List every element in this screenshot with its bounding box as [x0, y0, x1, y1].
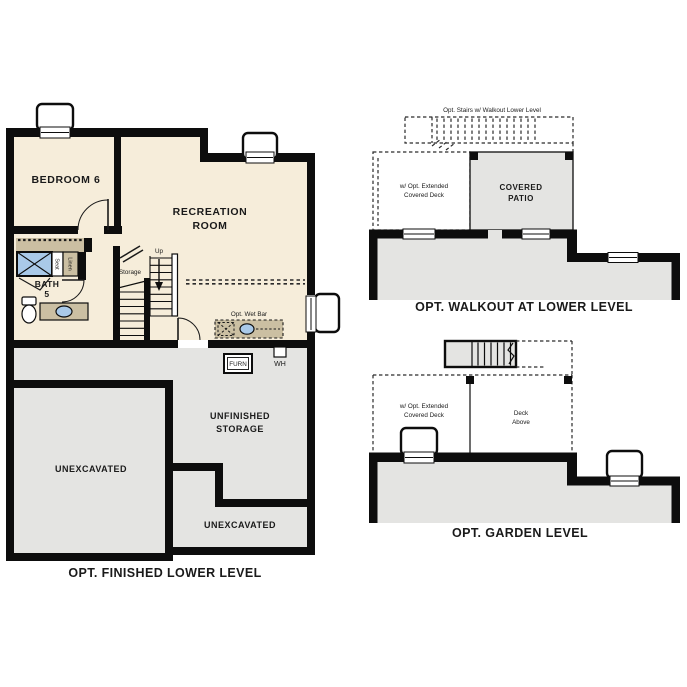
- patio-door-opening: [488, 230, 502, 239]
- unexcavated-left-label: UNEXCAVATED: [55, 464, 127, 474]
- linen-cabinet: Linen: [63, 252, 78, 276]
- toilet-icon: [22, 297, 36, 323]
- shower-seat: Seat: [52, 252, 63, 276]
- window-well-right: [306, 294, 339, 332]
- garden-stairs: [445, 341, 572, 375]
- recreation-label-line1: RECREATION: [173, 206, 248, 218]
- walkout-floor-area: [377, 238, 672, 300]
- window-well-top-right: [243, 133, 277, 163]
- walkout-deck-label-line2: Covered Deck: [404, 192, 445, 199]
- garden-deck-label-line1: w/ Opt. Extended: [399, 403, 449, 410]
- bath-label-line1: BATH: [35, 279, 60, 289]
- opt-extended-deck-walkout: [373, 152, 470, 230]
- walkout-title: OPT. WALKOUT AT LOWER LEVEL: [415, 300, 633, 314]
- unfinished-label-line1: UNFINISHED: [210, 411, 270, 421]
- walkout-deck-label-line1: w/ Opt. Extended: [399, 183, 449, 190]
- vanity-sink-icon: [40, 303, 88, 320]
- storage-closet-label: Storage: [119, 269, 142, 276]
- recreation-label-line2: ROOM: [192, 220, 227, 232]
- furnace-box: FURN: [224, 354, 252, 373]
- plan-garden-level: w/ Opt. Extended Covered Deck Deck Above…: [369, 341, 680, 540]
- patio-post: [565, 152, 573, 160]
- deck-post: [564, 376, 572, 384]
- unfinished-label-line2: STORAGE: [216, 424, 264, 434]
- patio-label-line2: PATIO: [508, 194, 534, 203]
- wet-bar-label: Opt. Wet Bar: [231, 311, 267, 318]
- window-well-top-left: [37, 104, 73, 138]
- seat-label: Seat: [54, 258, 60, 270]
- water-heater: WH: [274, 347, 286, 368]
- garden-window-well-left: [401, 428, 437, 463]
- deck-above-label-line2: Above: [512, 419, 530, 426]
- floor-plan-sheet: Seat Linen: [0, 0, 687, 687]
- bedroom-label: BEDROOM 6: [32, 174, 101, 186]
- up-label: Up: [155, 248, 164, 255]
- garden-window-well-right: [607, 451, 642, 486]
- patio-post: [470, 152, 478, 160]
- finished-lower-title: OPT. FINISHED LOWER LEVEL: [68, 566, 261, 580]
- bath-label-line2: 5: [44, 289, 49, 299]
- wet-bar-sink-icon: [240, 324, 254, 334]
- linen-label: Linen: [67, 257, 73, 270]
- plan-finished-lower-level: Seat Linen: [6, 104, 339, 580]
- water-heater-label: WH: [274, 361, 286, 368]
- furnace-label: FURN: [229, 361, 247, 368]
- opt-wet-bar: [215, 320, 283, 338]
- deck-post: [466, 376, 474, 384]
- plan-walkout-lower-level: Opt. Stairs w/ Walkout Lower Level w/ Op…: [369, 107, 680, 314]
- stair-handrail: [172, 254, 178, 316]
- opt-stairs-note: Opt. Stairs w/ Walkout Lower Level: [443, 107, 541, 114]
- covered-patio: COVERED PATIO: [470, 152, 573, 230]
- deck-above-label-line1: Deck: [514, 410, 529, 417]
- garden-title: OPT. GARDEN LEVEL: [452, 526, 588, 540]
- closet-shelf-band: [16, 238, 84, 252]
- unexcavated-bottom-label: UNEXCAVATED: [204, 520, 276, 530]
- garden-deck-label-line2: Covered Deck: [404, 412, 445, 419]
- floor-plan-drawing: Seat Linen: [0, 0, 687, 687]
- opt-stairs-dashed: [405, 117, 573, 152]
- patio-label-line1: COVERED: [499, 183, 542, 192]
